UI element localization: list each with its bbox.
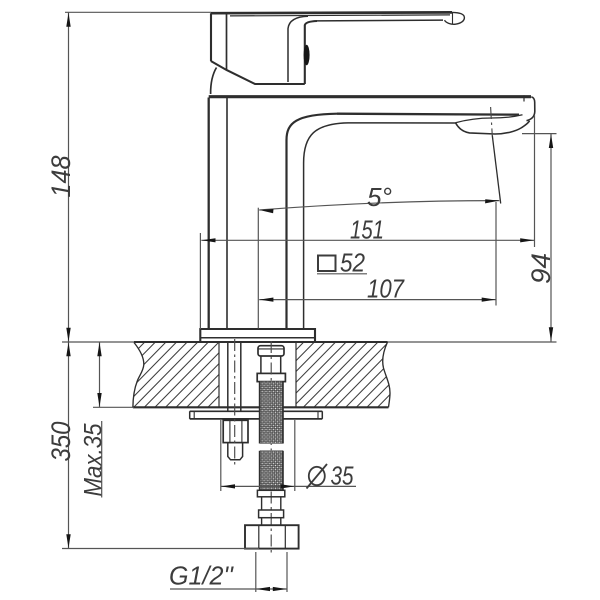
svg-text:94: 94 [526,253,556,284]
svg-text:350: 350 [46,422,76,462]
svg-text:151: 151 [350,215,384,245]
svg-text:5°: 5° [367,182,392,212]
svg-text:52: 52 [340,248,365,278]
svg-text:148: 148 [46,156,76,198]
svg-text:Max.35: Max.35 [80,423,108,496]
svg-text:107: 107 [367,274,405,304]
svg-text:35: 35 [331,461,354,491]
svg-text:G1/2'': G1/2'' [169,561,234,591]
